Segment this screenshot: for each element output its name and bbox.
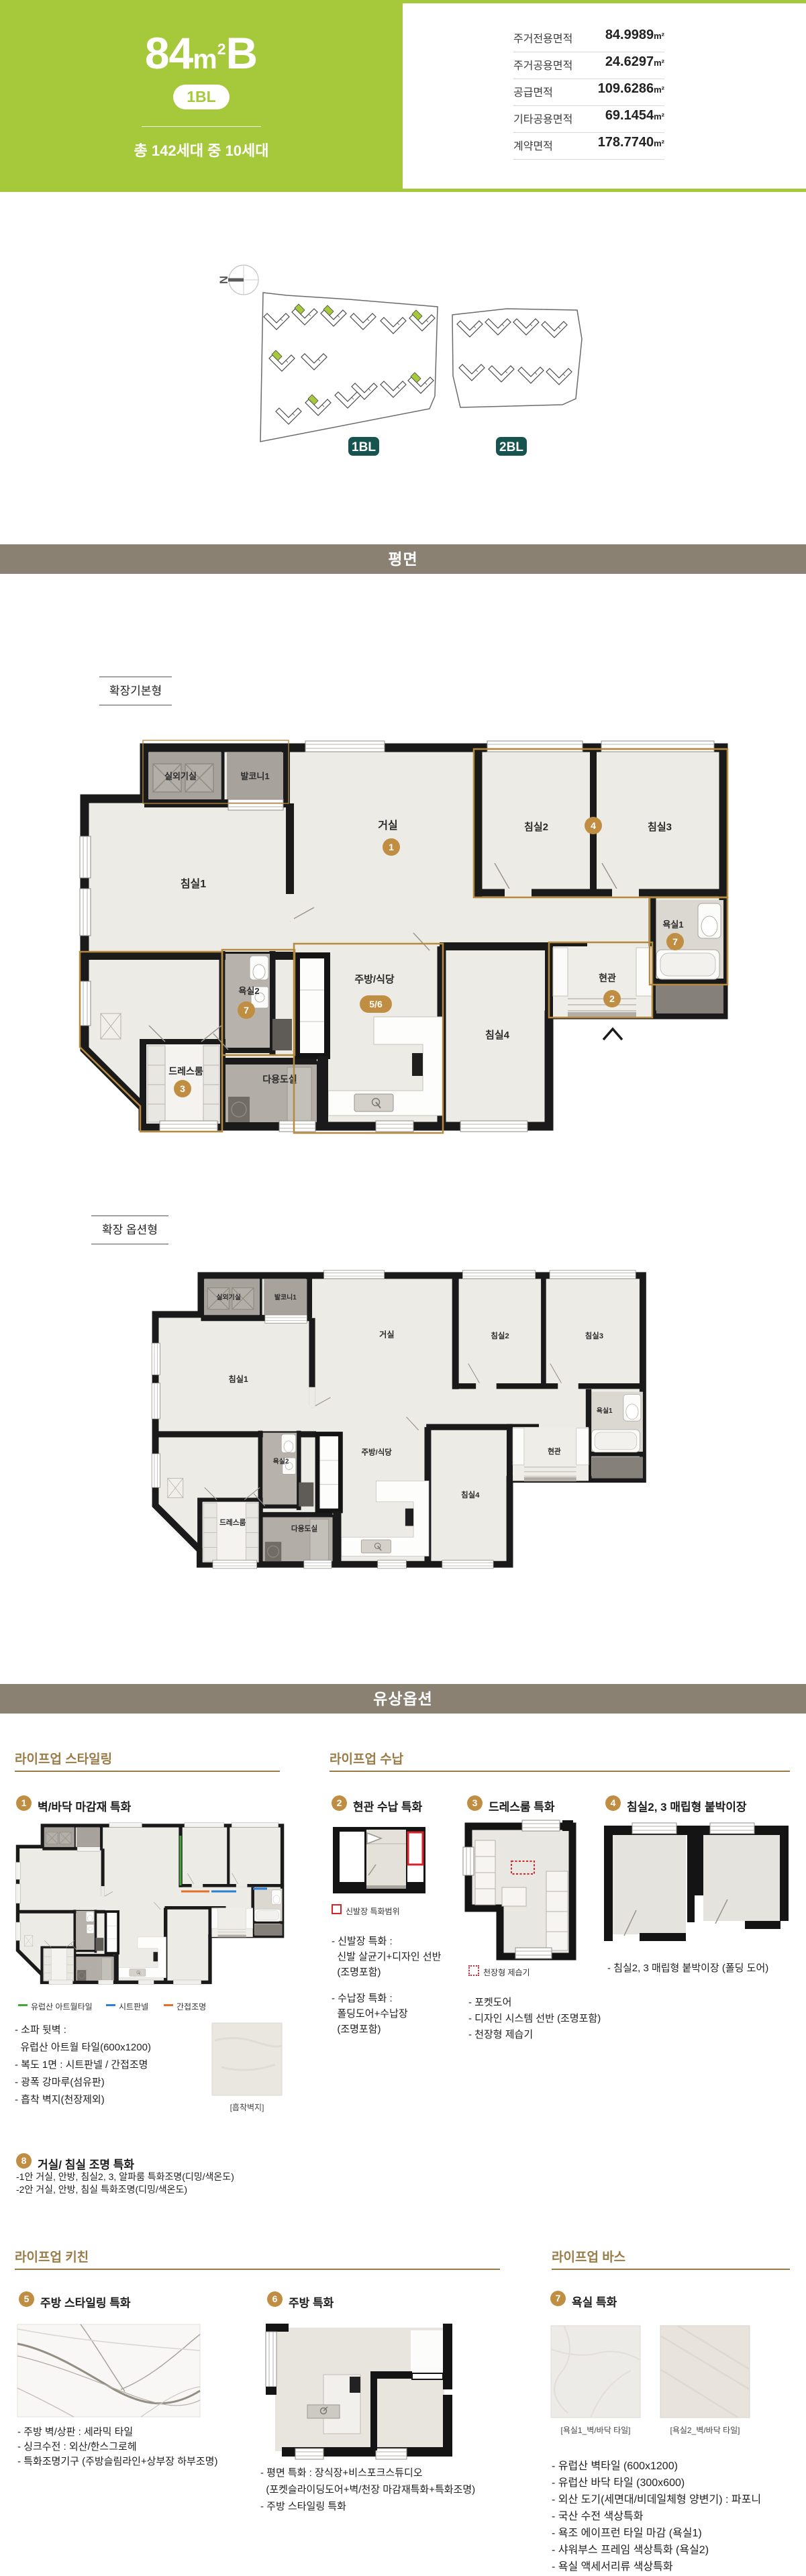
svg-text:2BL: 2BL <box>499 440 523 454</box>
svg-text:N: N <box>217 276 230 284</box>
svg-text:1BL: 1BL <box>352 440 376 454</box>
